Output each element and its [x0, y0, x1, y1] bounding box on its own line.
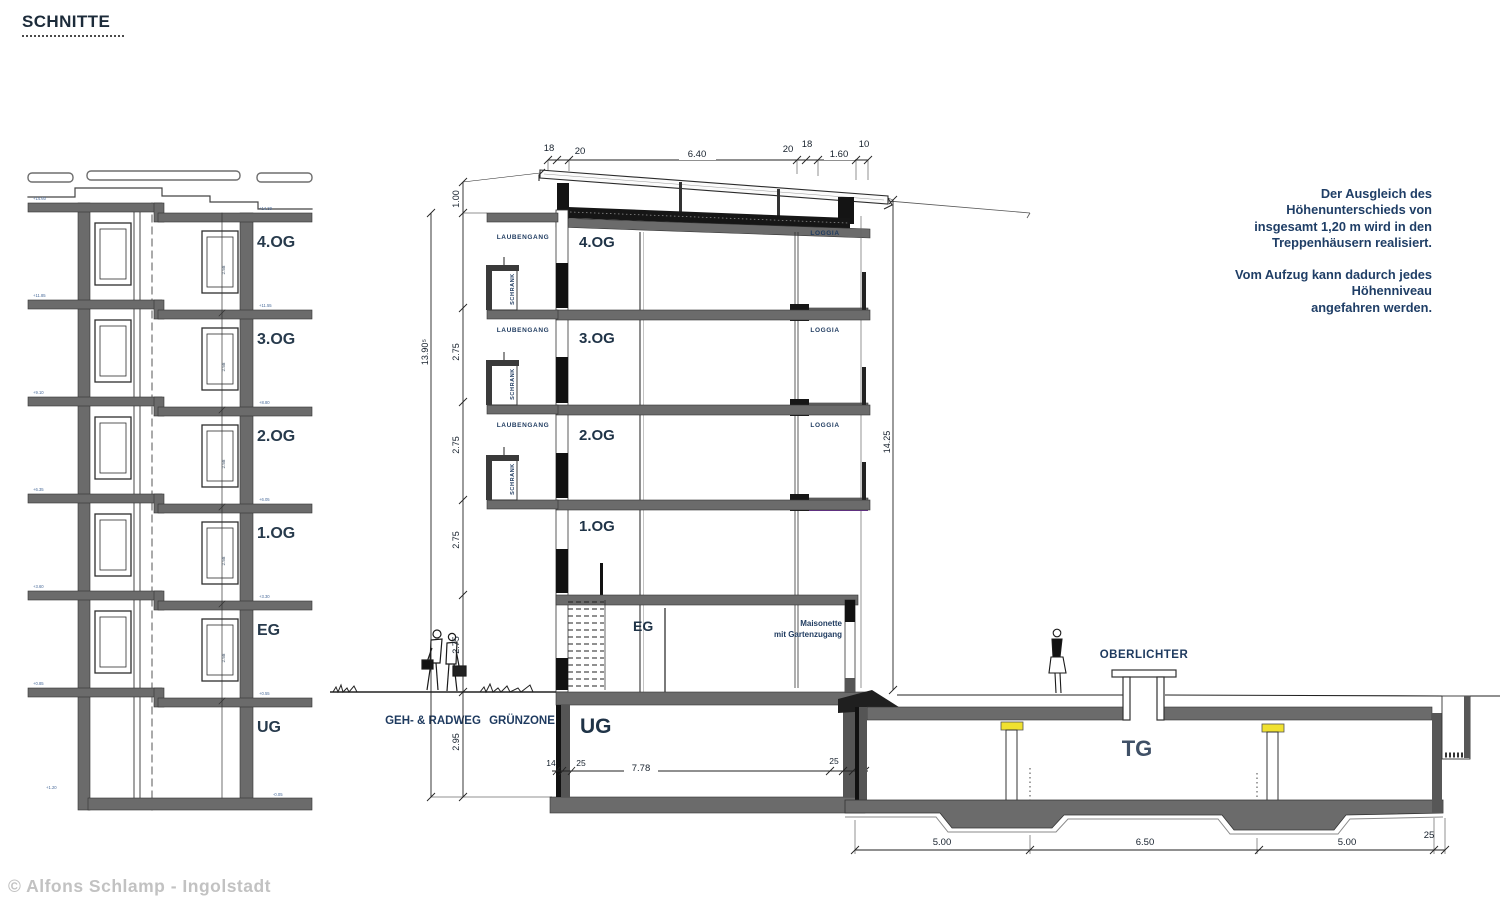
floor-label: EG: [633, 618, 653, 634]
grass-tuft: [333, 685, 357, 692]
floor-label: UG: [257, 719, 281, 736]
storey-dim-label: 2.58: [221, 556, 226, 565]
left-floor-labels: 4.OG 3.OG 2.OG 1.OG EG UG: [257, 234, 295, 736]
floor-label: 2.OG: [257, 428, 295, 445]
floor-label: 4.OG: [257, 234, 295, 251]
dim-label: 14.25: [882, 431, 892, 454]
floor-label: 4.OG: [579, 234, 615, 251]
dim-label: 7.78: [632, 763, 651, 774]
elevation-label: +6.05: [259, 497, 270, 502]
storey-dim-label: 2.58: [221, 265, 226, 274]
stairs-hatch: [568, 600, 605, 690]
glazing-line: [795, 232, 798, 688]
storey-dim-label: 2.58: [221, 362, 226, 371]
left-building-section: 2.58 2.58 2.58 2.58 2.58 +14.60 +11.85 +…: [28, 171, 312, 810]
floor-label: 2.OG: [579, 427, 615, 444]
dim-label: 10: [859, 139, 870, 150]
dim-label: 6.50: [1136, 837, 1155, 848]
schrank-label: SCHRANK: [510, 463, 516, 495]
roof: [539, 169, 1030, 238]
dim-total-label: 13.90⁵: [420, 339, 430, 366]
dim-label: 2.75: [451, 531, 461, 549]
dim-label: 14: [546, 758, 556, 768]
dim-label: 5.00: [1338, 837, 1357, 848]
schrank-label: SCHRANK: [510, 368, 516, 400]
dim-label: 1.00: [451, 190, 461, 208]
dim-label: 25: [1424, 830, 1435, 841]
loggia-parapet: [862, 462, 866, 502]
elevation-label: +3.30: [259, 594, 270, 599]
section-drawing: 2.58 2.58 2.58 2.58 2.58 +14.60 +11.85 +…: [0, 0, 1500, 905]
loggia-parapet: [862, 367, 866, 407]
tg-ground-line: [897, 695, 1500, 696]
loggia-parapet: [862, 272, 866, 312]
loggia-label: LOGGIA: [810, 230, 839, 237]
maisonette-label: mit Gartenzugang: [774, 630, 842, 639]
loggia-label: LOGGIA: [810, 327, 839, 334]
elevation-label: +11.55: [259, 303, 272, 308]
ug-dim-chain: [552, 767, 869, 775]
dim-label: 18: [544, 143, 555, 154]
elevation-label: +14.60: [33, 196, 47, 201]
window-column-right: [202, 231, 238, 681]
elevation-label: +14.30: [259, 206, 273, 211]
elevation-label: +8.80: [259, 400, 270, 405]
maisonette-right-wall: [845, 600, 855, 692]
dim-label: 20: [575, 146, 586, 157]
dim-label: 1.60: [830, 149, 849, 160]
stair-wall: [600, 563, 603, 597]
top-dimension-labels: 18 20 6.40 20 18 1.60 10: [544, 139, 870, 160]
geh-radweg-label: GEH- & RADWEG: [385, 715, 481, 727]
floor-label: 3.OG: [257, 331, 295, 348]
dim-label: 2.95: [451, 733, 461, 751]
dim-label: 2.75: [451, 343, 461, 361]
elevation-label: +0.55: [259, 691, 270, 696]
floor-label: 1.OG: [257, 525, 295, 542]
maisonette-label: Maisonette: [800, 619, 842, 628]
garage-column: [1262, 724, 1284, 802]
dim-label: 25: [576, 758, 586, 768]
storey-dim-label: 2.58: [221, 459, 226, 468]
elevation-label: +0.85: [33, 681, 44, 686]
person-figure: [1049, 629, 1066, 693]
ground-line: [330, 684, 556, 692]
left-wall: [78, 203, 90, 810]
elevation-label: +1.20: [46, 785, 57, 790]
tg-floor-slab: [845, 800, 1443, 830]
dim-label: 6.40: [688, 149, 707, 160]
dim-label: 2.75: [451, 436, 461, 454]
elevation-label: +9.10: [33, 390, 44, 395]
grass-tuft: [480, 684, 533, 692]
mid-left-wall: [556, 210, 568, 692]
dim-label: 5.00: [933, 837, 952, 848]
elevation-markers-left: +14.60 +11.85 +9.10 +6.35 +3.60 +0.85 +1…: [33, 196, 57, 790]
canopy-line: [888, 201, 1030, 213]
schrank-label: SCHRANK: [510, 273, 516, 305]
oberlichter-label: OBERLICHTER: [1100, 649, 1189, 661]
laubengang-label: LAUBENGANG: [497, 422, 550, 429]
roof-panel-bars: [28, 171, 312, 182]
floor-label: EG: [257, 622, 280, 639]
garage-column: [1001, 722, 1023, 802]
elevation-markers-right: +14.30 +11.55 +8.80 +6.05 +3.30 +0.55 -0…: [259, 206, 283, 797]
elevation-label: -0.05: [273, 792, 283, 797]
loggia-label: LOGGIA: [810, 422, 839, 429]
laubengang-label: LAUBENGANG: [497, 234, 550, 241]
dim-label: 18: [802, 139, 813, 150]
loggia-structure: [790, 216, 868, 688]
tg-label: TG: [1122, 736, 1153, 761]
elevation-label: +6.35: [33, 487, 44, 492]
window-column-left: [95, 223, 131, 673]
floor-label: UG: [580, 715, 612, 738]
dim-label: 2.75: [451, 636, 461, 654]
tg-left-wall-edge: [855, 707, 859, 802]
tg-dim-labels: 5.00 6.50 5.00 25: [933, 830, 1435, 848]
elevation-label: +3.60: [33, 584, 44, 589]
elevation-label: +11.85: [33, 293, 46, 298]
light-well: [1432, 696, 1470, 813]
gruenzone-label: GRÜNZONE: [489, 714, 555, 727]
floor-label: 1.OG: [579, 518, 615, 535]
tg-floor-underline: [845, 817, 1443, 834]
dim-label: 20: [783, 144, 794, 155]
storey-dim-label: 2.58: [221, 653, 226, 662]
dim-label: 25: [829, 756, 839, 766]
laubengang-label: LAUBENGANG: [497, 327, 550, 334]
drawing-sheet: SCHNITTE Der Ausgleich des Höhenuntersch…: [0, 0, 1500, 905]
floor-label: 3.OG: [579, 330, 615, 347]
tg-garage-section: OBERLICHTER TG 5.00 6.50 5.00 25: [838, 629, 1500, 854]
